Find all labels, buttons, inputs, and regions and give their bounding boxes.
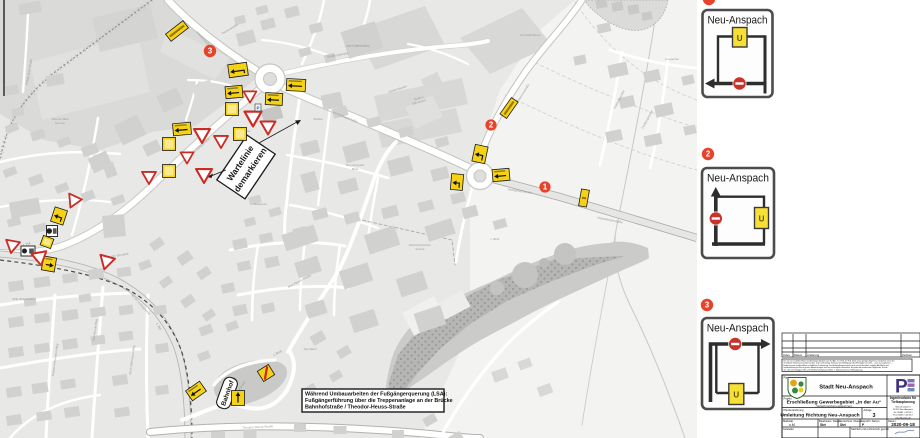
svg-text:1: 1: [543, 183, 548, 192]
svg-text:Tiefbauplanung: Tiefbauplanung: [891, 400, 915, 404]
svg-text:Service: Service: [55, 121, 65, 125]
svg-text:61267 Neu-Anspach: 61267 Neu-Anspach: [893, 408, 914, 411]
svg-text:P: P: [895, 377, 908, 398]
svg-text:2: 2: [489, 121, 494, 130]
svg-text:Wiesenstraße 4: Wiesenstraße 4: [895, 406, 911, 409]
svg-text:Schule: Schule: [415, 247, 425, 251]
svg-text:3: 3: [873, 413, 876, 419]
svg-text:Während Umbauarbeiten der Fußg: Während Umbauarbeiten der Fußgängerqueru…: [305, 392, 447, 398]
svg-text:Am Kellerbdem: Am Kellerbdem: [346, 44, 369, 48]
svg-text:Neu-Anspach: Neu-Anspach: [708, 15, 768, 27]
svg-text:Anlage: Anlage: [864, 408, 873, 412]
svg-text:Index: Index: [783, 353, 790, 357]
svg-text:Neu-Anspach: Neu-Anspach: [707, 323, 769, 335]
svg-text:o.M.: o.M.: [789, 423, 796, 427]
svg-text:Am Kellerbdem: Am Kellerbdem: [520, 33, 541, 37]
svg-text:Stei: Stei: [840, 423, 846, 427]
svg-text:Willy-Brandt-Weg: Willy-Brandt-Weg: [12, 297, 36, 301]
svg-text:U: U: [733, 391, 739, 400]
svg-text:Sachlich und rechnerisch geprü: Sachlich und rechnerisch geprüft: [851, 427, 889, 431]
svg-text:- Verkehrssicherungskonzept -: - Verkehrssicherungskonzept -: [814, 404, 853, 408]
svg-text:U: U: [737, 34, 743, 43]
svg-text:3: 3: [705, 301, 710, 310]
svg-text:Fax 06081 / 44 63 2: Fax 06081 / 44 63 2: [893, 415, 913, 417]
svg-text:Aufsteller: Aufsteller: [783, 427, 794, 431]
svg-text:Änderung: Änderung: [807, 353, 820, 357]
svg-text:3: 3: [208, 47, 213, 56]
svg-text:L 3041: L 3041: [490, 237, 499, 241]
svg-text:info@ib-plan.de: info@ib-plan.de: [895, 417, 911, 419]
svg-text:Planbezeichnung: Planbezeichnung: [784, 408, 804, 412]
svg-text:Alte Bach: Alte Bach: [304, 347, 317, 351]
svg-text:Neu-Anspach: Neu-Anspach: [707, 173, 769, 185]
svg-text:Anspacher: Anspacher: [665, 57, 679, 61]
svg-text:Stadt Neu-Anspach: Stadt Neu-Anspach: [819, 385, 873, 391]
svg-text:Stei: Stei: [820, 423, 826, 427]
svg-text:2020-09-18: 2020-09-18: [891, 422, 915, 427]
svg-text:incl. aller einschlägigen DIN-: incl. aller einschlägigen DIN- und Unfal…: [784, 368, 864, 371]
svg-text:2: 2: [706, 150, 711, 159]
svg-text:Wiesenau: Wiesenau: [253, 202, 267, 206]
svg-text:Fußgängerführung über die Trep: Fußgängerführung über die Treppenanlage …: [305, 398, 453, 404]
svg-text:Südtex: Südtex: [313, 117, 323, 121]
svg-text:U: U: [759, 215, 765, 224]
svg-text:Tel. 06081 / 44 63 1: Tel. 06081 / 44 63 1: [893, 412, 913, 414]
svg-text:P: P: [256, 106, 259, 111]
svg-text:Zeichen: Zeichen: [902, 353, 912, 357]
svg-text:Umleitung Richtung Neu-Anspach: Umleitung Richtung Neu-Anspach: [780, 413, 859, 419]
svg-text:Bahnhofstraße / Theodor-Heuss-: Bahnhofstraße / Theodor-Heuss-Straße: [305, 405, 406, 411]
svg-text:Mitte: Mitte: [352, 167, 359, 171]
svg-text:Datum: Datum: [794, 353, 803, 357]
